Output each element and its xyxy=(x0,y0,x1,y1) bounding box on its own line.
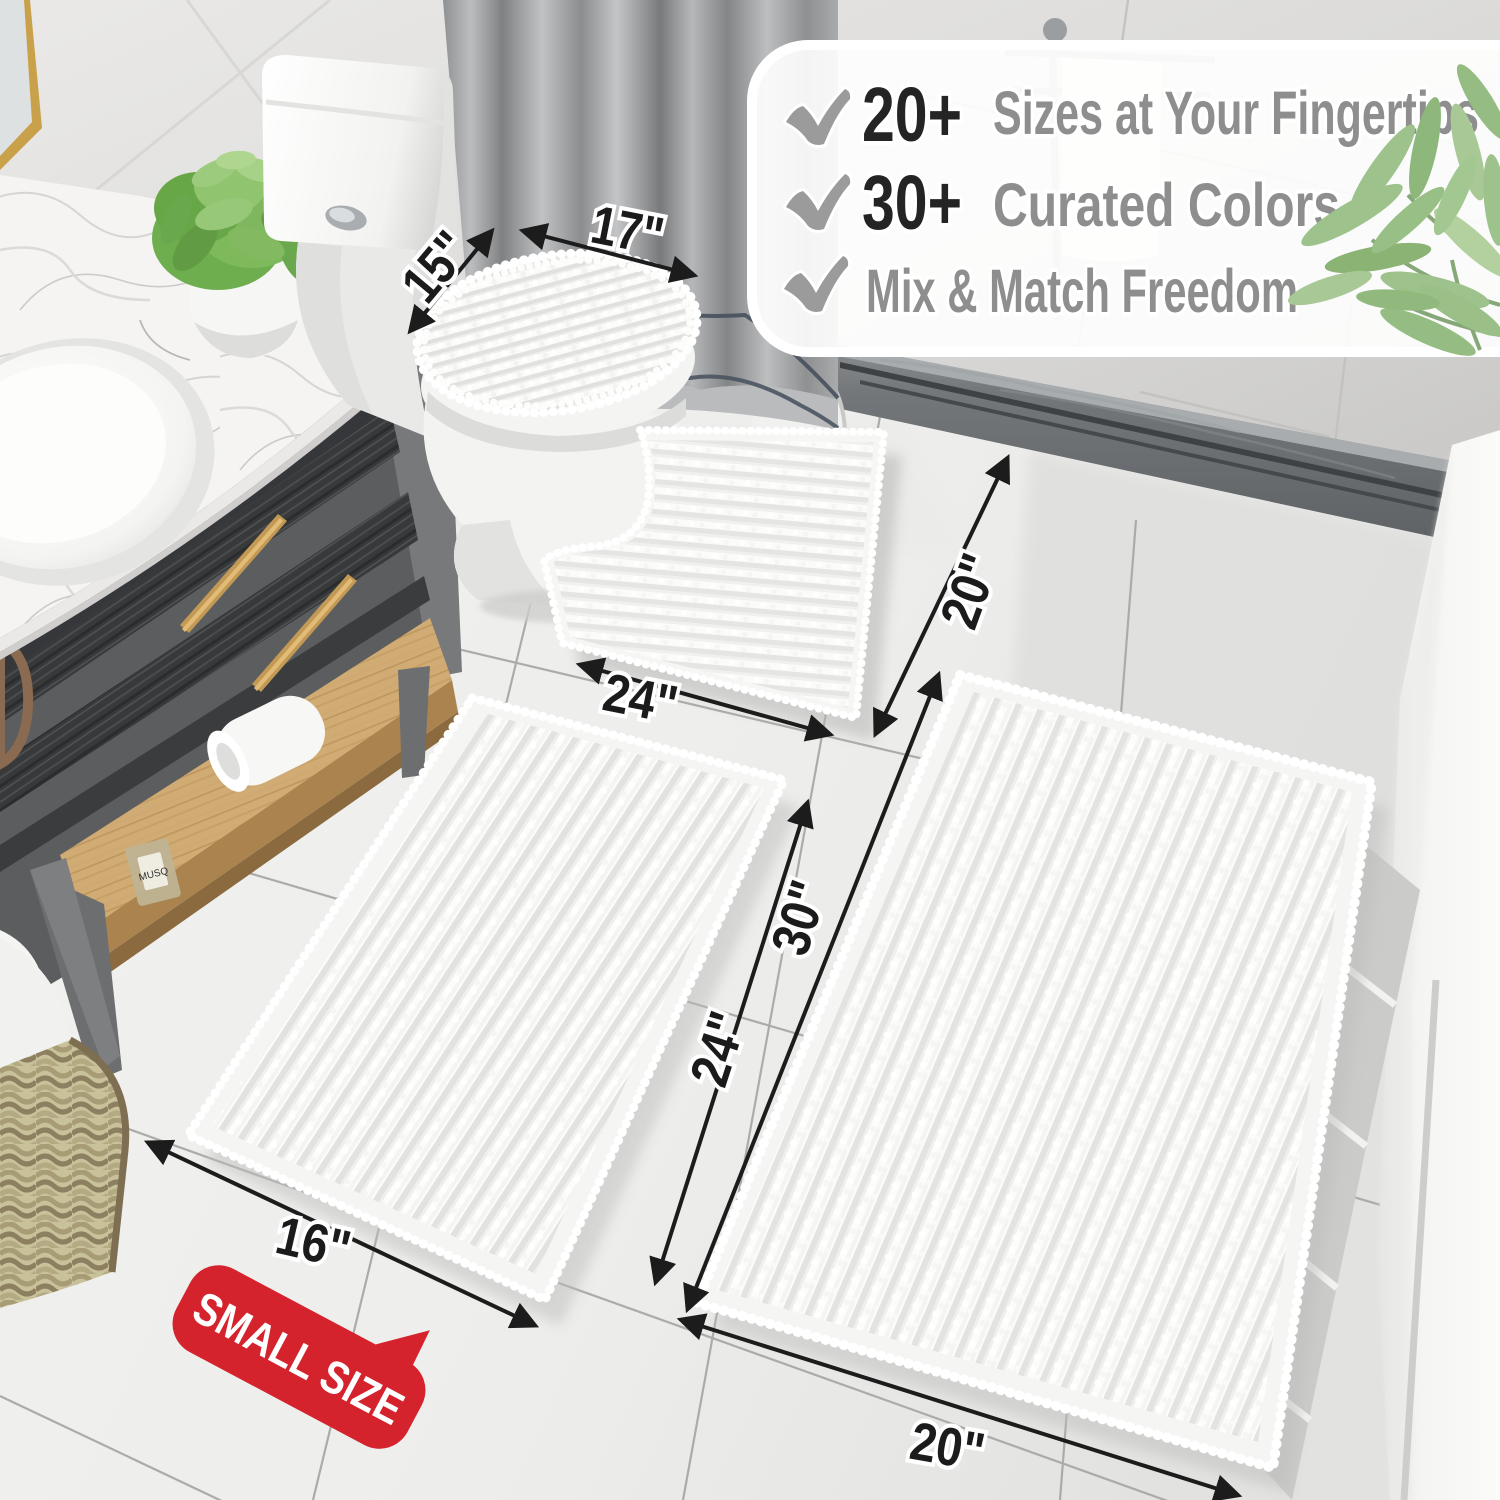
svg-text:30+: 30+ xyxy=(862,160,962,246)
svg-text:Curated Colors: Curated Colors xyxy=(993,171,1340,239)
svg-text:Mix & Match Freedom: Mix & Match Freedom xyxy=(866,257,1298,325)
svg-text:20": 20" xyxy=(906,1411,989,1483)
svg-text:20+: 20+ xyxy=(862,72,962,158)
